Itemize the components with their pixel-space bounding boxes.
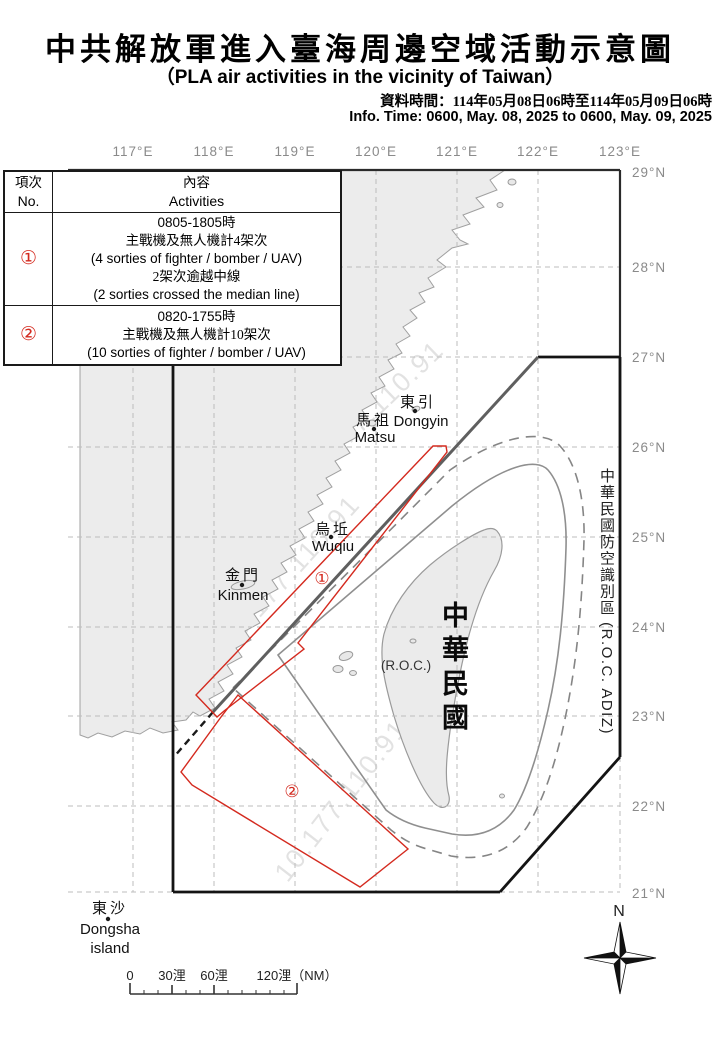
wuqiu-label-zh: 烏坵 (315, 521, 351, 538)
adiz-vertical-label-zh: 中華民國防空識別區 (598, 468, 615, 617)
matsu-label-zh: 馬祖 (356, 412, 392, 429)
page: 10.177.110.91 10.177.110.91 10.177.110.9… (0, 0, 720, 1040)
info-time-zh: 資料時間：114年05月08日06時至114年05月09日06時 (152, 90, 712, 111)
svg-text:121°E: 121°E (436, 144, 478, 159)
dongsha-label-en2: island (90, 940, 129, 957)
zone-2-marker: ② (284, 782, 299, 801)
svg-text:22°N: 22°N (632, 799, 666, 814)
kinmen-label-zh: 金門 (225, 567, 261, 584)
svg-text:60浬: 60浬 (200, 968, 227, 983)
table-row-2-no: ② (5, 306, 53, 364)
svg-text:28°N: 28°N (632, 260, 666, 275)
svg-text:117°E: 117°E (113, 144, 154, 159)
svg-text:120°E: 120°E (355, 144, 397, 159)
matsu-label-en: Matsu (355, 429, 396, 446)
svg-text:123°E: 123°E (599, 144, 641, 159)
compass-north-label: N (613, 903, 625, 920)
svg-text:29°N: 29°N (632, 165, 666, 180)
svg-text:30浬: 30浬 (158, 968, 185, 983)
dongsha-label-en1: Dongsha (80, 921, 141, 938)
dongyin-label-en: Dongyin (393, 413, 448, 430)
svg-text:21°N: 21°N (632, 886, 666, 901)
activities-table: 項次 No. 內容 Activities ① 0805-1805時 主戰機及無人… (3, 170, 342, 366)
scale-bar (130, 983, 297, 994)
dongsha-label-zh: 東沙 (92, 900, 128, 917)
svg-text:23°N: 23°N (632, 709, 666, 724)
adiz-vertical-label-en: (R.O.C. ADIZ) (598, 617, 615, 736)
activity-zone-markers: ① ② (284, 569, 329, 801)
adiz-vertical-label: 中華民國防空識別區 (R.O.C. ADIZ) (596, 468, 617, 735)
svg-text:122°E: 122°E (517, 144, 559, 159)
svg-text:26°N: 26°N (632, 440, 666, 455)
info-time-en: Info. Time: 0600, May. 08, 2025 to 0600,… (152, 109, 712, 125)
table-row-2-content: 0820-1755時 主戰機及無人機計10架次 (10 sorties of f… (53, 306, 340, 364)
roc-paren-label: (R.O.C.) (381, 658, 431, 673)
dongyin-label-zh: 東引 (400, 394, 436, 411)
wuqiu-label-en: Wuqiu (312, 538, 354, 555)
svg-text:118°E: 118°E (194, 144, 235, 159)
table-row-1-content: 0805-1805時 主戰機及無人機計4架次 (4 sorties of fig… (53, 213, 340, 306)
kinmen-label-en: Kinmen (218, 587, 269, 604)
table-header-no: 項次 No. (5, 172, 53, 213)
page-subtitle: （PLA air activities in the vicinity of T… (0, 62, 720, 89)
longitude-labels: 117°E 118°E 119°E 120°E 121°E 122°E 123°… (113, 144, 641, 159)
svg-text:25°N: 25°N (632, 530, 666, 545)
table-header-activities: 內容 Activities (53, 172, 340, 213)
svg-text:120浬（NM）: 120浬（NM） (257, 968, 338, 983)
roc-vertical-title: 中華民國 (434, 601, 473, 737)
svg-text:24°N: 24°N (632, 620, 666, 635)
compass-rose (584, 922, 656, 994)
svg-text:119°E: 119°E (275, 144, 316, 159)
table-row-1-no: ① (5, 213, 53, 306)
latitude-labels: 29°N 28°N 27°N 26°N 25°N 24°N 23°N 22°N … (632, 165, 666, 901)
svg-text:0: 0 (126, 968, 133, 983)
zone-1-marker: ① (314, 569, 329, 588)
svg-text:27°N: 27°N (632, 350, 666, 365)
scale-bar-labels: 0 30浬 60浬 120浬（NM） (126, 968, 337, 983)
